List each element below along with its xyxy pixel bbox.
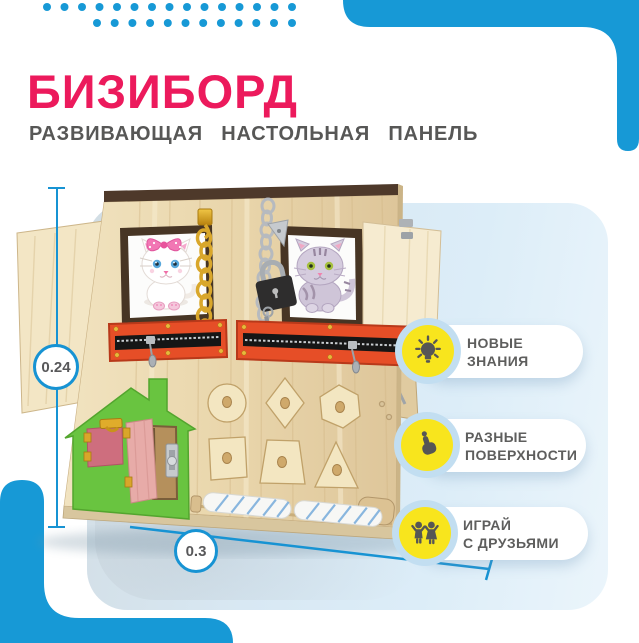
bolt-latch [166, 444, 178, 477]
door-hinge [401, 232, 413, 239]
dots-decoration [0, 0, 310, 32]
feature-icon-badge [392, 500, 458, 566]
height-dimension-cap-bottom [48, 526, 65, 528]
feature-text: РАЗНЫЕ [465, 428, 586, 446]
height-dimension-cap-top [48, 187, 65, 189]
zipper-slider [348, 341, 357, 349]
height-dimension-badge: 0.24 [33, 344, 79, 390]
zipper-pull [149, 355, 156, 367]
zipper-slider [146, 336, 155, 344]
zipper-pull [353, 361, 360, 373]
feature-icon-badge [394, 412, 460, 478]
feature-text: ИГРАЙ [463, 516, 588, 534]
product-card: БИЗИБОРД РАЗВИВАЮЩАЯ НАСТОЛЬНАЯ ПАНЕЛЬ [0, 0, 639, 643]
feature-text: ЗНАНИЯ [467, 352, 583, 370]
lightbulb-icon [412, 335, 444, 367]
feature-text: НОВЫЕ [467, 334, 583, 352]
door-hinge [399, 219, 413, 227]
feature-text: ПОВЕРХНОСТИ [465, 446, 586, 464]
page-subtitle: РАЗВИВАЮЩАЯ НАСТОЛЬНАЯ ПАНЕЛЬ [29, 124, 478, 144]
children-icon [409, 517, 441, 549]
touch-icon [411, 429, 443, 461]
cat-picture-right [280, 226, 364, 328]
width-dimension-badge: 0.3 [174, 529, 218, 573]
feature-text: С ДРУЗЬЯМИ [463, 534, 588, 552]
page-title: БИЗИБОРД [27, 68, 298, 115]
feature-icon-badge [395, 318, 461, 384]
